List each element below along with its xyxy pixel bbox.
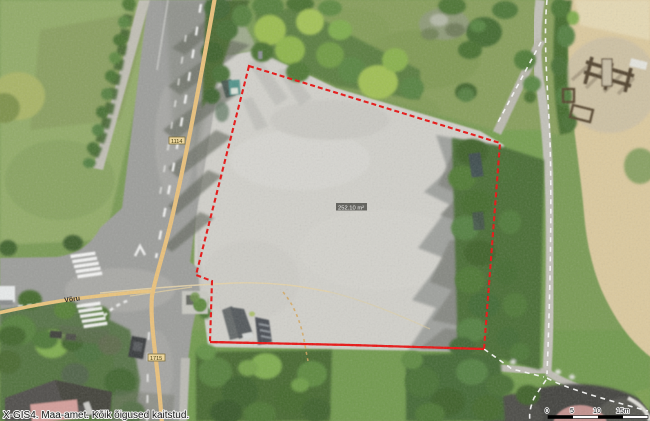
svg-text:5: 5 <box>570 408 574 415</box>
svg-text:10: 10 <box>593 408 601 415</box>
svg-text:0: 0 <box>545 408 549 415</box>
svg-text:15m: 15m <box>616 408 630 415</box>
